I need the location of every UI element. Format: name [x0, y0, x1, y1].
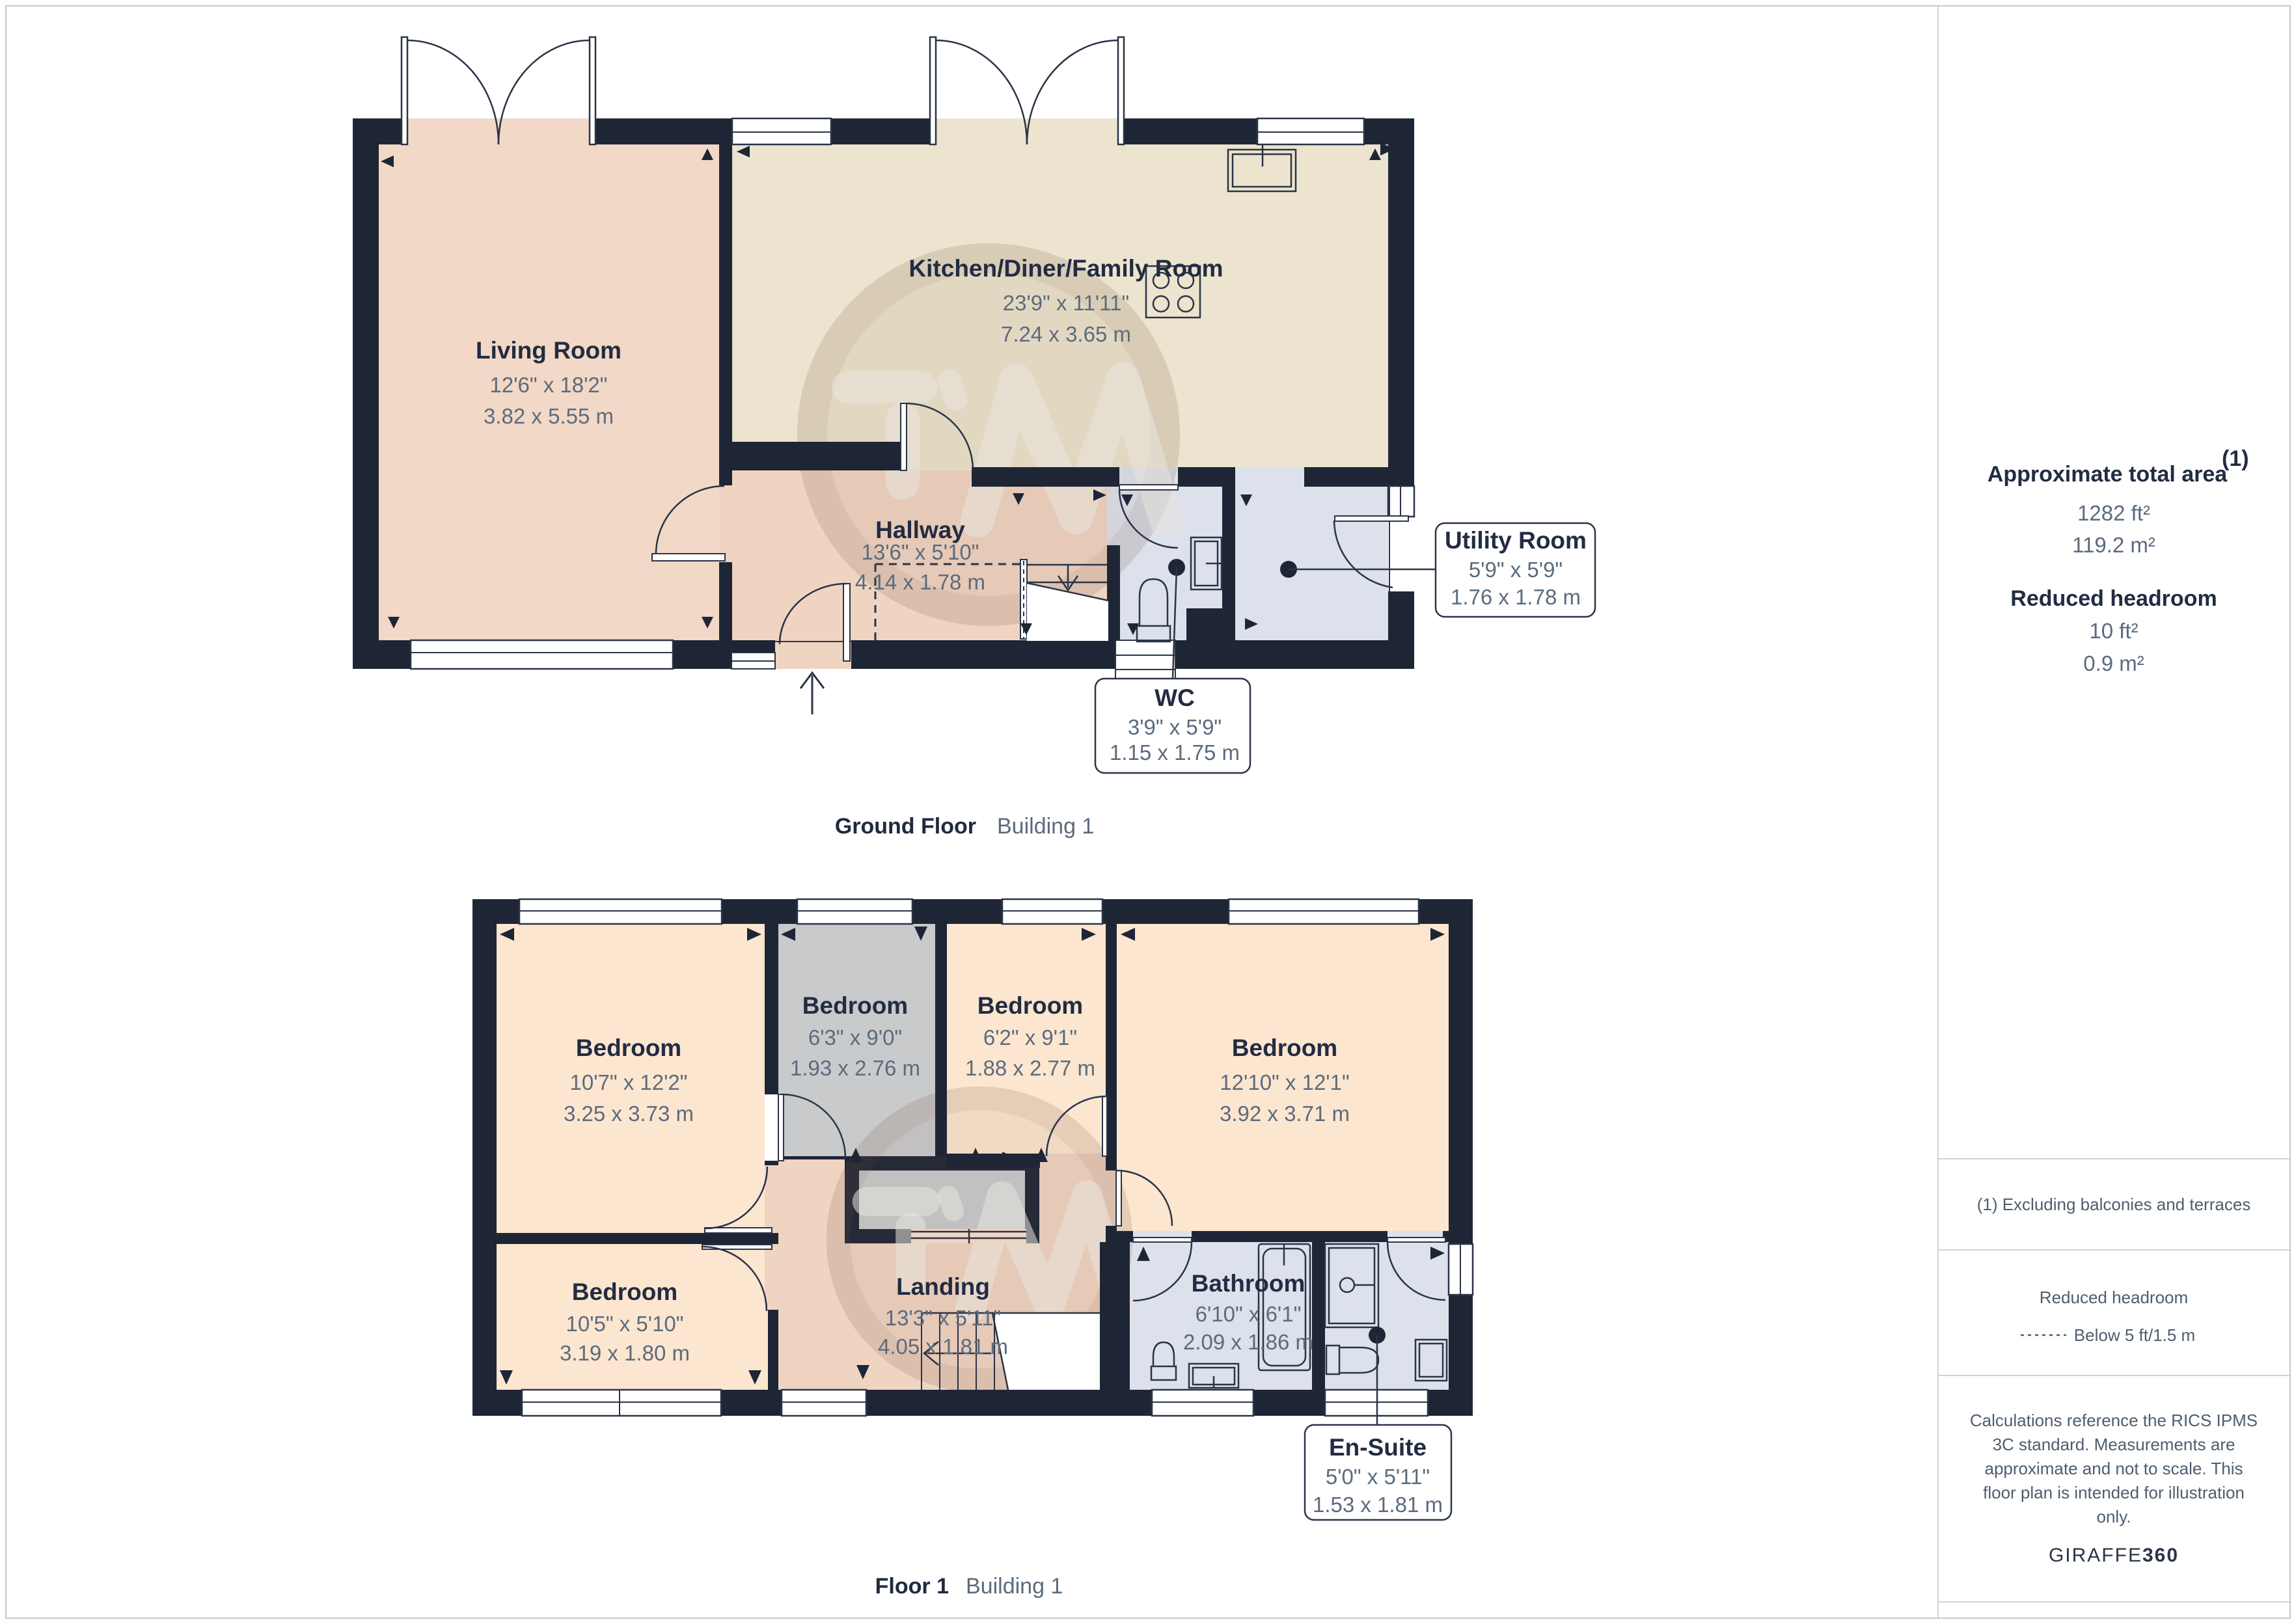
svg-text:12'10" x 12'1": 12'10" x 12'1": [1220, 1070, 1349, 1094]
svg-text:Ground Floor: Ground Floor: [835, 814, 976, 839]
svg-text:12'6" x 18'2": 12'6" x 18'2": [490, 373, 608, 397]
svg-text:3.82 x 5.55 m: 3.82 x 5.55 m: [484, 404, 614, 428]
svg-text:23'9" x 11'11": 23'9" x 11'11": [1003, 291, 1129, 315]
svg-text:Reduced headroom: Reduced headroom: [2010, 586, 2217, 611]
svg-text:1282 ft²: 1282 ft²: [2077, 501, 2150, 525]
svg-text:13'6" x 5'10": 13'6" x 5'10": [862, 540, 979, 564]
svg-text:7.24 x 3.65 m: 7.24 x 3.65 m: [1001, 322, 1131, 346]
svg-text:(1): (1): [2222, 446, 2249, 471]
svg-text:Bedroom: Bedroom: [572, 1279, 677, 1305]
svg-text:0.9 m²: 0.9 m²: [2083, 651, 2144, 675]
svg-text:Below 5 ft/1.5 m: Below 5 ft/1.5 m: [2074, 1325, 2195, 1345]
svg-text:GIRAFFE360: GIRAFFE360: [2049, 1545, 2179, 1566]
svg-text:1.76 x 1.78 m: 1.76 x 1.78 m: [1451, 585, 1581, 609]
svg-text:Bedroom: Bedroom: [576, 1035, 681, 1061]
svg-text:5'9" x 5'9": 5'9" x 5'9": [1469, 558, 1563, 582]
svg-text:1.53 x 1.81 m: 1.53 x 1.81 m: [1313, 1493, 1443, 1517]
svg-text:6'3" x 9'0": 6'3" x 9'0": [808, 1025, 902, 1049]
svg-text:(1) Excluding balconies and te: (1) Excluding balconies and terraces: [1977, 1195, 2251, 1214]
svg-text:En-Suite: En-Suite: [1329, 1434, 1427, 1461]
svg-text:Landing: Landing: [896, 1273, 990, 1300]
svg-text:Hallway: Hallway: [875, 517, 965, 543]
svg-text:only.: only.: [2097, 1507, 2131, 1526]
svg-text:3.25 x 3.73 m: 3.25 x 3.73 m: [564, 1102, 694, 1126]
svg-text:1.88 x 2.77 m: 1.88 x 2.77 m: [965, 1056, 1095, 1080]
svg-text:Reduced headroom: Reduced headroom: [2040, 1288, 2188, 1307]
svg-text:Building 1: Building 1: [966, 1574, 1063, 1599]
svg-text:Living Room: Living Room: [476, 337, 622, 364]
svg-text:13'3" x 5'11": 13'3" x 5'11": [885, 1306, 1002, 1330]
svg-text:Utility Room: Utility Room: [1445, 527, 1587, 554]
svg-text:Kitchen/Diner/Family Room: Kitchen/Diner/Family Room: [909, 255, 1223, 282]
svg-text:5'0" x 5'11": 5'0" x 5'11": [1326, 1465, 1430, 1489]
svg-text:Bedroom: Bedroom: [977, 992, 1083, 1019]
svg-text:1.15 x 1.75 m: 1.15 x 1.75 m: [1110, 740, 1240, 765]
svg-text:3.19 x 1.80 m: 3.19 x 1.80 m: [560, 1341, 690, 1365]
svg-text:3'9" x 5'9": 3'9" x 5'9": [1128, 715, 1222, 739]
svg-text:10'7" x 12'2": 10'7" x 12'2": [570, 1070, 688, 1094]
svg-text:4.05 x 1.81 m: 4.05 x 1.81 m: [878, 1334, 1008, 1359]
svg-text:6'2" x 9'1": 6'2" x 9'1": [983, 1025, 1077, 1049]
svg-text:Approximate total area: Approximate total area: [1988, 462, 2228, 487]
svg-text:approximate and not to scale.: approximate and not to scale. This: [1985, 1459, 2243, 1478]
svg-text:10 ft²: 10 ft²: [2089, 619, 2138, 643]
svg-text:WC: WC: [1155, 684, 1195, 711]
svg-text:2.09 x 1.86 m: 2.09 x 1.86 m: [1183, 1330, 1313, 1354]
svg-text:4.14 x 1.78 m: 4.14 x 1.78 m: [855, 570, 985, 594]
svg-text:Calculations reference the RIC: Calculations reference the RICS IPMS: [1970, 1411, 2258, 1430]
svg-text:10'5" x 5'10": 10'5" x 5'10": [566, 1312, 684, 1336]
svg-text:Bedroom: Bedroom: [802, 992, 908, 1019]
svg-text:Floor 1: Floor 1: [875, 1574, 949, 1599]
svg-text:119.2 m²: 119.2 m²: [2072, 533, 2155, 557]
svg-text:Building 1: Building 1: [997, 814, 1094, 839]
svg-text:Bedroom: Bedroom: [1232, 1035, 1337, 1061]
svg-text:Bathroom: Bathroom: [1192, 1270, 1305, 1297]
svg-text:6'10" x 6'1": 6'10" x 6'1": [1196, 1302, 1302, 1326]
svg-text:3C standard. Measurements are: 3C standard. Measurements are: [1993, 1435, 2235, 1454]
svg-text:1.93 x 2.76 m: 1.93 x 2.76 m: [790, 1056, 920, 1080]
svg-text:3.92 x 3.71 m: 3.92 x 3.71 m: [1220, 1102, 1350, 1126]
svg-text:floor plan is intended for ill: floor plan is intended for illustration: [1983, 1483, 2245, 1502]
